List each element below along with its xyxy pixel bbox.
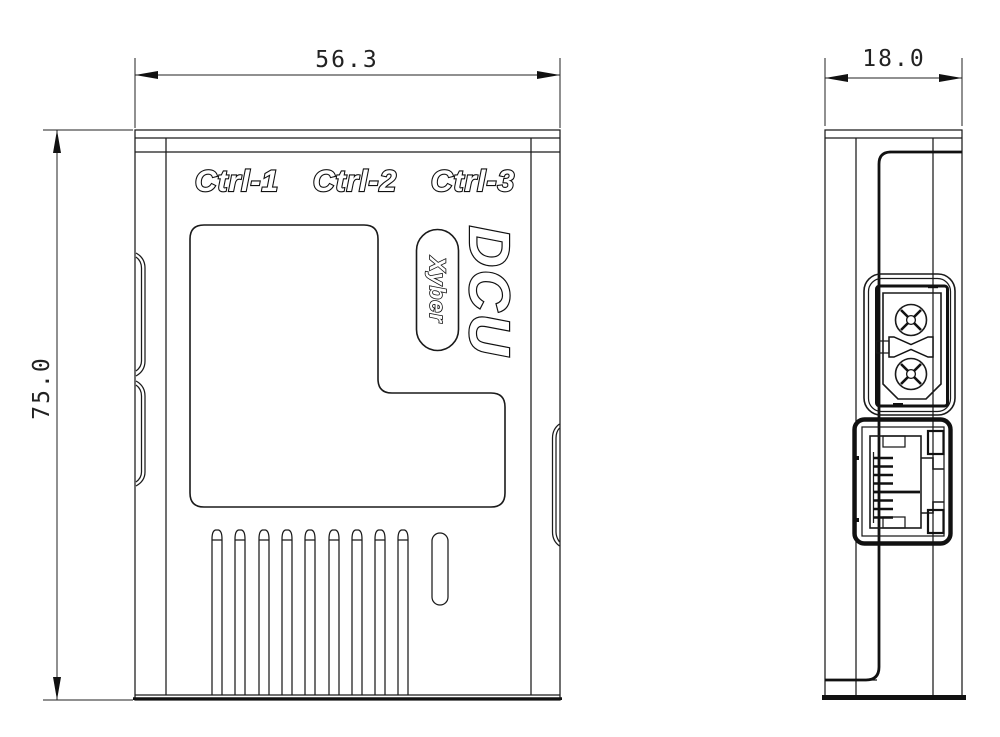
dim-width-front-value: 56.3 xyxy=(315,47,378,73)
vent-slot xyxy=(282,530,292,695)
side-bottom-edge xyxy=(822,695,966,700)
power-connector xyxy=(864,274,955,415)
ctrl-labels: Ctrl-1 Ctrl-2 Ctrl-3 xyxy=(195,165,515,198)
vent-slot xyxy=(212,530,222,695)
dim-arrow-right xyxy=(537,71,560,79)
brand-badge: Xyber xyxy=(417,230,459,351)
vent-slot xyxy=(375,530,385,695)
side-outline xyxy=(825,130,962,696)
ctrl-3-label: Ctrl-3 xyxy=(431,165,515,198)
vent-slot xyxy=(352,530,362,695)
front-outline xyxy=(135,130,560,700)
rj45-tick-top xyxy=(855,456,859,460)
dim-height-front: 75.0 xyxy=(29,130,133,700)
edge-clip-right xyxy=(553,424,560,546)
dim-height-front-value: 75.0 xyxy=(29,356,55,419)
dim-arrow-right xyxy=(939,74,962,82)
product-name-text: DCU xyxy=(457,226,521,359)
drawing-svg: Ctrl-1 Ctrl-2 Ctrl-3 Xyber DCU xyxy=(0,0,1000,737)
vent-slots xyxy=(212,530,448,695)
side-view xyxy=(822,130,966,700)
power-pin-bottom xyxy=(896,359,927,390)
vent-slot xyxy=(259,530,269,695)
dim-arrow-top xyxy=(53,130,61,153)
vent-slot xyxy=(305,530,315,695)
dim-arrow-left xyxy=(825,74,848,82)
rj45-pin-comb xyxy=(874,452,921,523)
dim-depth-side-value: 18.0 xyxy=(862,46,925,72)
edge-clip-left-lower xyxy=(136,381,145,486)
edge-clip-left-upper xyxy=(136,253,145,376)
rj45-latch-notch-top xyxy=(883,436,905,447)
pill-slot xyxy=(432,533,448,605)
dim-arrow-bottom xyxy=(53,677,61,700)
rj45-tick-bottom xyxy=(855,518,859,522)
connector-key-mark-bottom xyxy=(893,403,903,406)
dim-arrow-left xyxy=(135,71,158,79)
vent-slot xyxy=(329,530,339,695)
connector-key-mark-top xyxy=(928,285,938,288)
vent-slot xyxy=(398,530,408,695)
ctrl-1-label: Ctrl-1 xyxy=(195,165,279,198)
front-view: Ctrl-1 Ctrl-2 Ctrl-3 Xyber DCU xyxy=(133,130,562,700)
ctrl-2-label: Ctrl-2 xyxy=(313,165,397,198)
brand-name-text: Xyber xyxy=(425,255,450,324)
dim-depth-side: 18.0 xyxy=(825,46,962,126)
power-pin-top xyxy=(896,305,927,336)
ethernet-port xyxy=(855,420,951,544)
technical-drawing: Ctrl-1 Ctrl-2 Ctrl-3 Xyber DCU xyxy=(0,0,1000,737)
rj45-led-window-top xyxy=(928,431,944,454)
rj45-outer-bezel xyxy=(855,420,951,544)
rj45-inner-frame xyxy=(862,427,944,536)
vent-slot xyxy=(235,530,245,695)
polarity-bowtie xyxy=(889,337,933,357)
rj45-keyway xyxy=(921,458,944,513)
side-recess-outline xyxy=(825,152,962,680)
dim-width-front: 56.3 xyxy=(135,47,560,128)
